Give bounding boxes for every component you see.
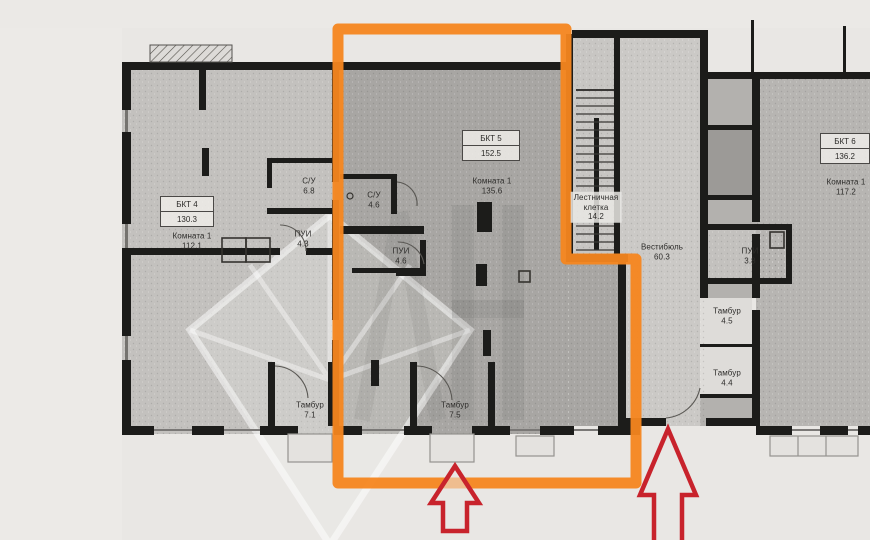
unit-name: БКТ 5 [463,131,519,145]
room-label-pui-common: ПУИ 3.8 [742,247,759,266]
room-label-bkt6-main: Комната 1 117.2 [827,178,866,197]
arrow-up-icon [640,429,696,540]
room-label-bkt5-pui: ПУИ 4.6 [393,247,410,266]
room-label-bkt5-su: С/У 4.6 [367,191,380,210]
floor-plan-screenshot: БКТ 4 130.3 Комната 1 112.1 С/У 6.8 ПУИ … [0,0,870,540]
room-label-bkt4-su: С/У 6.8 [302,177,315,196]
room-label-bkt4-tambur: Тамбур 7.1 [296,401,324,420]
floor-plan-drawing [0,0,870,540]
unit-tag-bkt5: БКТ 5 152.5 [462,130,520,161]
unit-name: БКТ 6 [821,134,869,148]
stair-treads [576,90,614,250]
room-label-bkt4-main: Комната 1 112.1 [173,232,212,251]
room-label-bkt5-main: Комната 1 135.6 [473,177,512,196]
room-label-tambur-45: Тамбур 4.5 [713,307,741,326]
unit-area: 130.3 [161,211,213,226]
room-label-tambur-44: Тамбур 4.4 [713,369,741,388]
unit-area: 136.2 [821,148,869,163]
unit-name: БКТ 4 [161,197,213,211]
unit-tag-bkt4: БКТ 4 130.3 [160,196,214,227]
room-label-vestibule: Вестибюль 60.3 [641,243,683,262]
room-label-bkt4-pui: ПУИ 4.3 [295,230,312,249]
unit-tag-bkt6: БКТ 6 136.2 [820,133,870,164]
room-label-bkt5-tambur: Тамбур 7.5 [441,401,469,420]
arrow-up-icon [431,466,479,531]
unit-area: 152.5 [463,145,519,160]
room-label-stair: Лестничная клетка 14.2 [571,192,622,223]
